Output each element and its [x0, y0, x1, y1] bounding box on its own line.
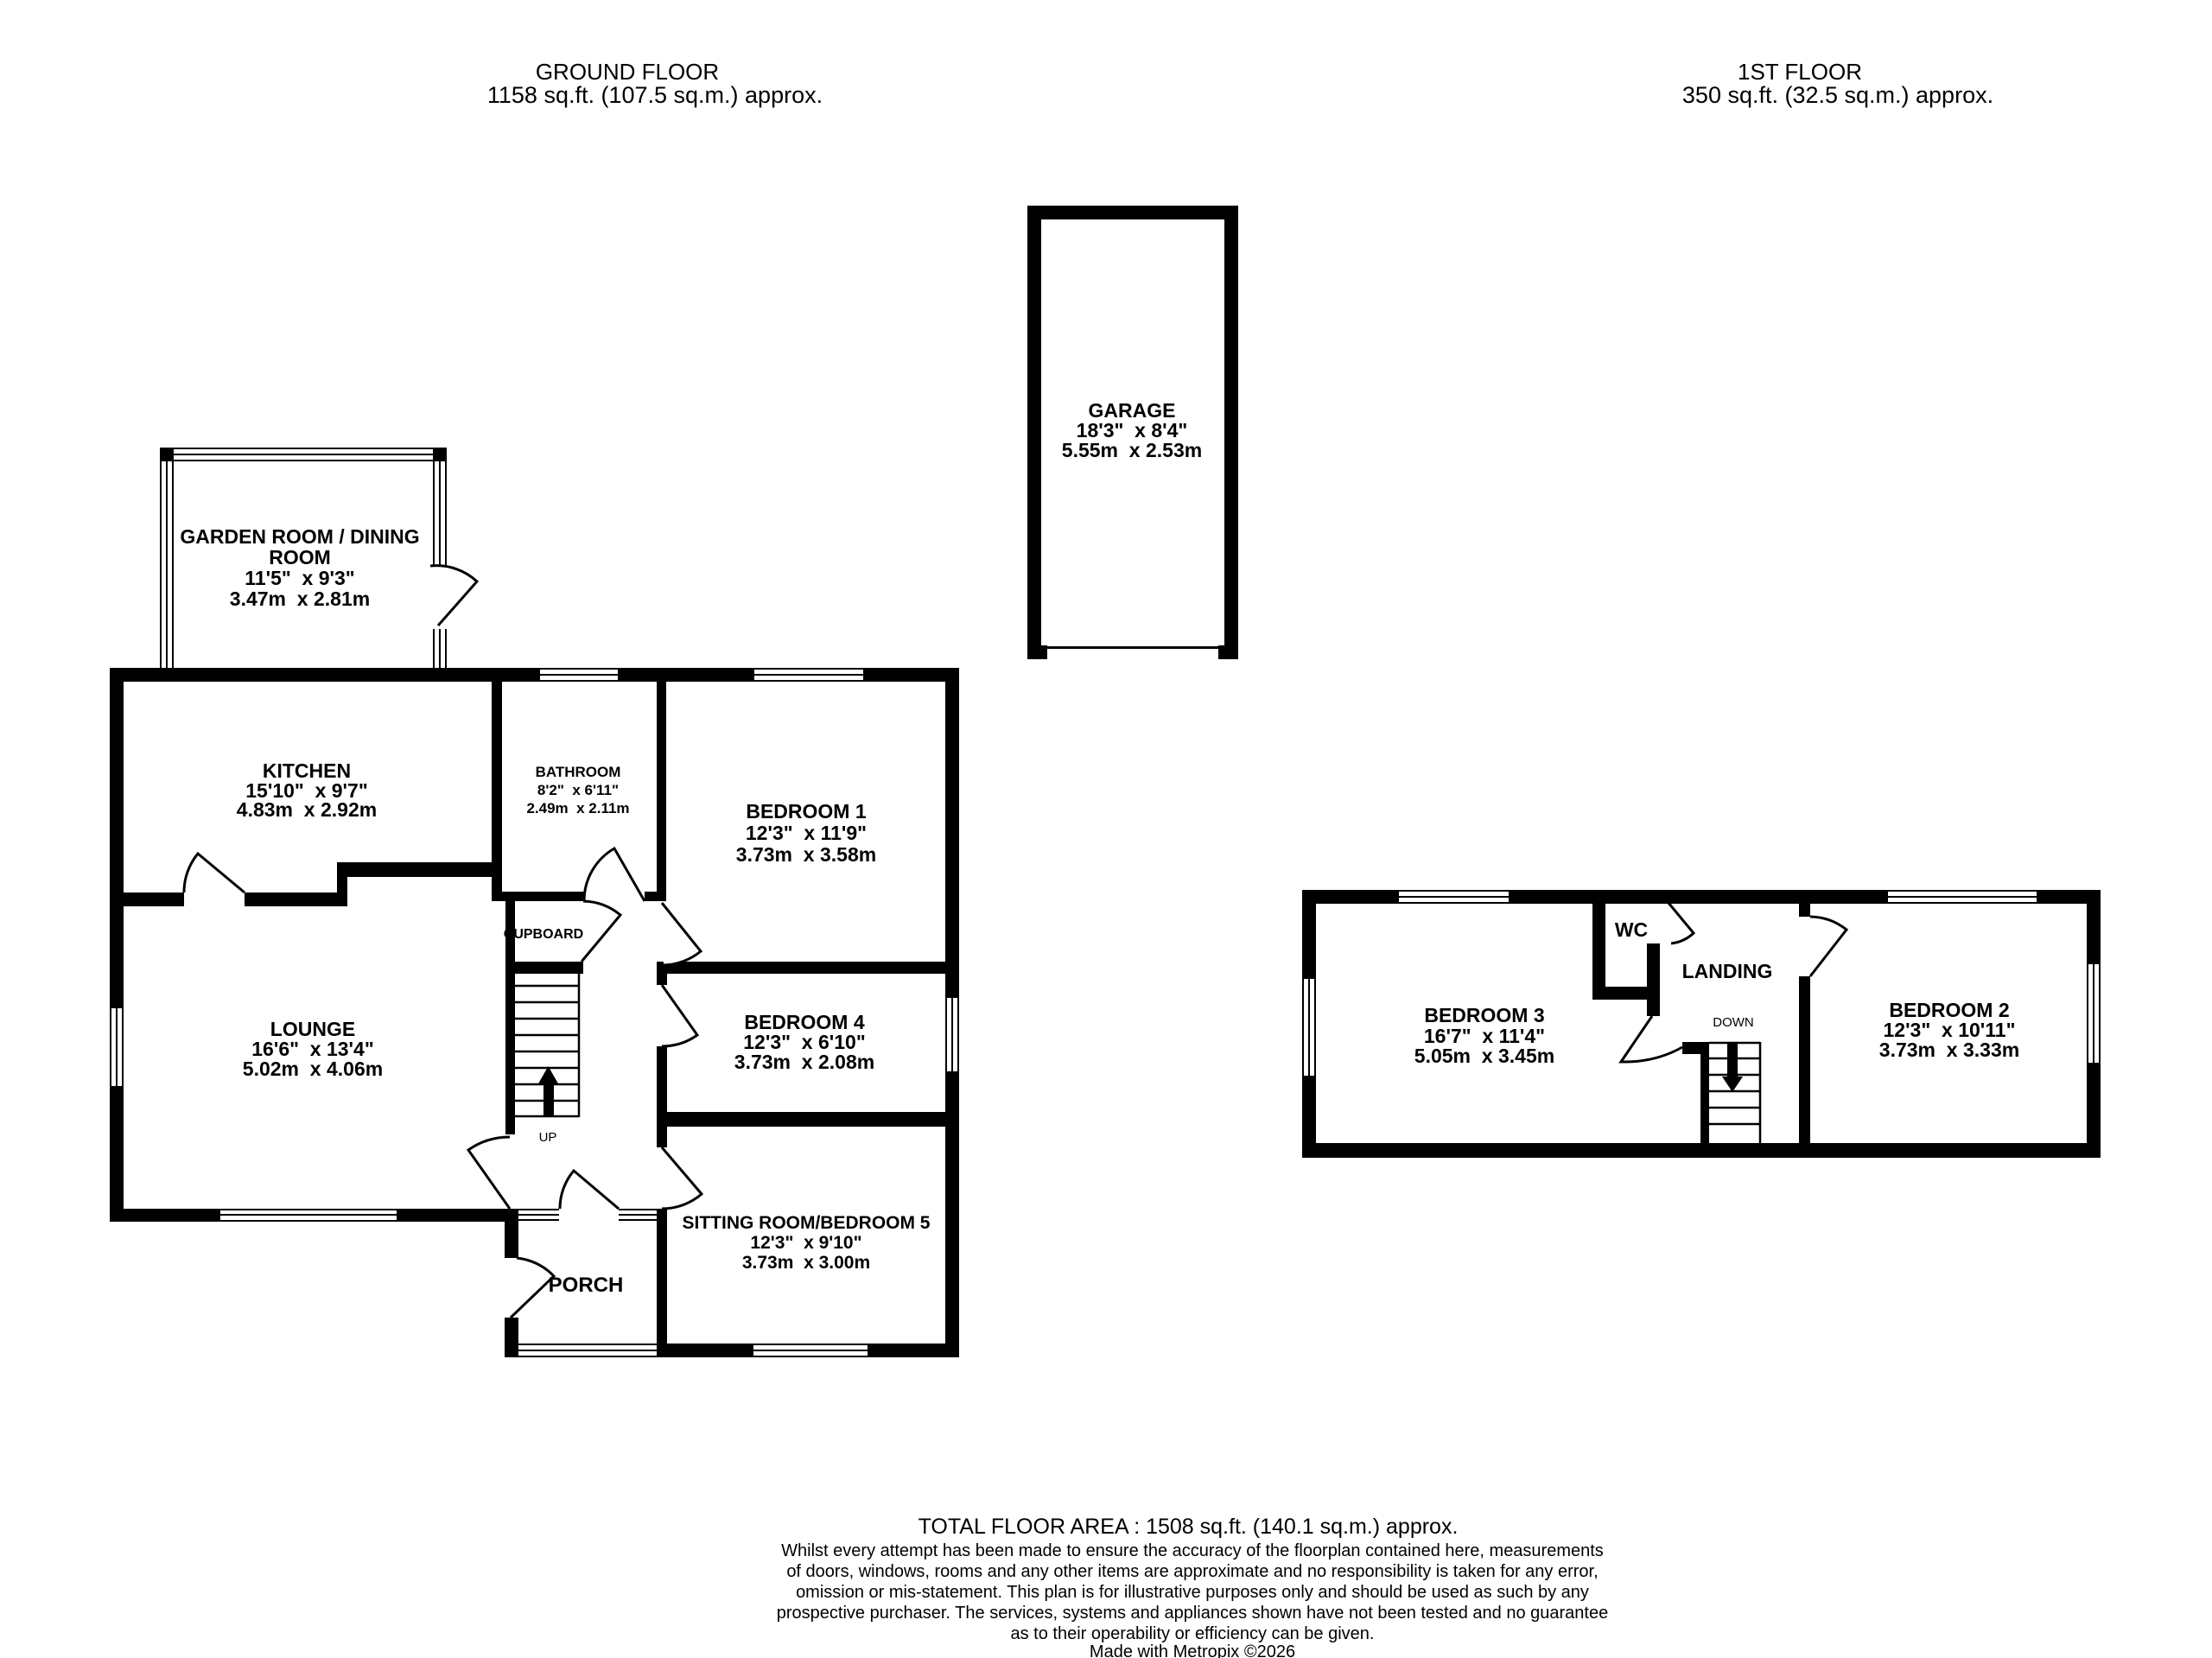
- svg-text:3.73m x 3.33m: 3.73m x 3.33m: [1879, 1039, 2019, 1061]
- svg-text:3.73m x 2.08m: 3.73m x 2.08m: [734, 1051, 874, 1073]
- svg-text:12'3" x 9'10": 12'3" x 9'10": [750, 1233, 861, 1253]
- svg-text:12'3" x 11'9": 12'3" x 11'9": [746, 822, 867, 844]
- svg-text:GROUND FLOOR: GROUND FLOOR: [536, 59, 719, 85]
- svg-text:UP: UP: [539, 1130, 557, 1145]
- svg-text:Whilst every attempt has been: Whilst every attempt has been made to en…: [781, 1541, 1604, 1560]
- svg-text:TOTAL FLOOR AREA : 1508 sq.ft.: TOTAL FLOOR AREA : 1508 sq.ft. (140.1 sq…: [918, 1515, 1459, 1539]
- svg-text:ROOM: ROOM: [269, 546, 331, 569]
- svg-text:Made with Metropix ©2026: Made with Metropix ©2026: [1090, 1642, 1295, 1658]
- svg-text:1ST FLOOR: 1ST FLOOR: [1738, 59, 1862, 85]
- svg-text:omission or mis-statement. Thi: omission or mis-statement. This plan is …: [796, 1583, 1589, 1602]
- svg-text:350 sq.ft. (32.5 sq.m.) approx: 350 sq.ft. (32.5 sq.m.) approx.: [1682, 82, 1993, 108]
- svg-text:3.73m x 3.00m: 3.73m x 3.00m: [742, 1253, 870, 1273]
- svg-text:11'5" x 9'3": 11'5" x 9'3": [245, 567, 354, 589]
- svg-text:WC: WC: [1615, 918, 1648, 941]
- svg-text:BEDROOM 1: BEDROOM 1: [746, 800, 867, 823]
- svg-text:CUPBOARD: CUPBOARD: [504, 927, 583, 942]
- svg-text:SITTING ROOM/BEDROOM 5: SITTING ROOM/BEDROOM 5: [682, 1213, 930, 1233]
- svg-text:as to their operability or eff: as to their operability or efficiency ca…: [1011, 1624, 1375, 1643]
- svg-text:8'2" x 6'11": 8'2" x 6'11": [537, 782, 619, 798]
- svg-text:of doors, windows, rooms and a: of doors, windows, rooms and any other i…: [786, 1562, 1598, 1581]
- svg-text:3.73m x 3.58m: 3.73m x 3.58m: [736, 843, 876, 866]
- svg-text:GARDEN ROOM / DINING: GARDEN ROOM / DINING: [180, 525, 419, 548]
- svg-text:1158 sq.ft. (107.5 sq.m.) appr: 1158 sq.ft. (107.5 sq.m.) approx.: [487, 82, 823, 108]
- svg-text:4.83m x 2.92m: 4.83m x 2.92m: [237, 798, 377, 821]
- svg-text:PORCH: PORCH: [549, 1274, 624, 1297]
- svg-text:5.02m x 4.06m: 5.02m x 4.06m: [243, 1058, 383, 1080]
- svg-text:BEDROOM 3: BEDROOM 3: [1424, 1004, 1544, 1026]
- svg-text:prospective purchaser. The ser: prospective purchaser. The services, sys…: [777, 1604, 1608, 1623]
- svg-text:2.49m x 2.11m: 2.49m x 2.11m: [526, 800, 629, 816]
- svg-text:5.55m x 2.53m: 5.55m x 2.53m: [1062, 439, 1202, 461]
- svg-text:DOWN: DOWN: [1713, 1015, 1754, 1030]
- svg-text:LANDING: LANDING: [1682, 960, 1773, 982]
- svg-text:3.47m x 2.81m: 3.47m x 2.81m: [230, 588, 370, 610]
- svg-text:BATHROOM: BATHROOM: [536, 764, 621, 780]
- svg-text:5.05m x 3.45m: 5.05m x 3.45m: [1414, 1045, 1554, 1067]
